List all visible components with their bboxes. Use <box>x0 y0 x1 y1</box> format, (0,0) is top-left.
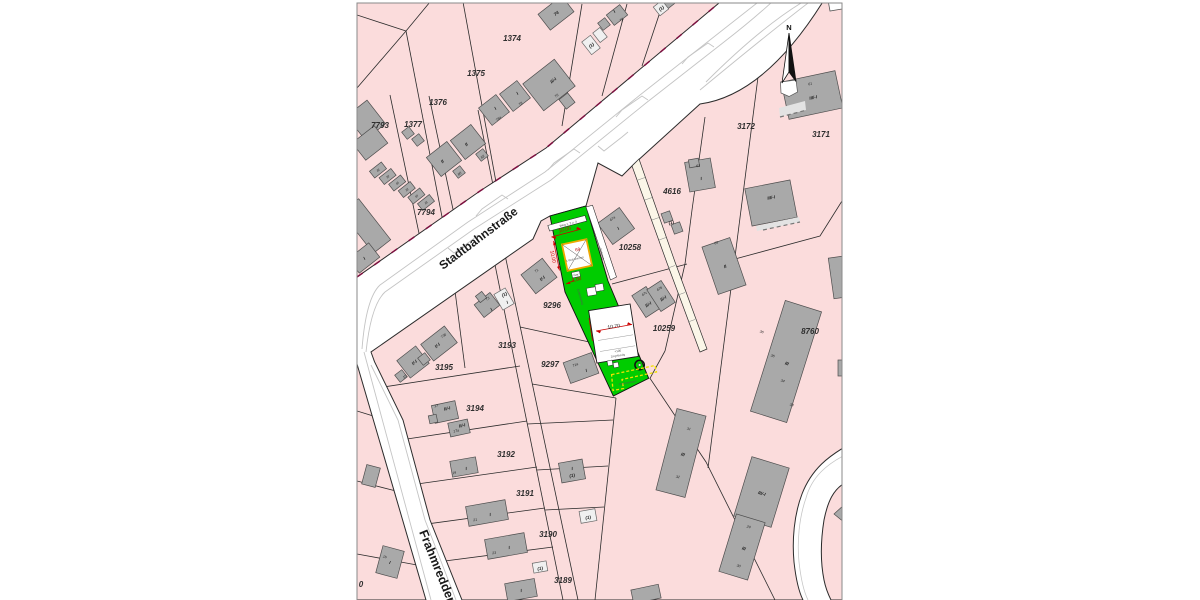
svg-text:10259: 10259 <box>653 324 676 333</box>
svg-text:7794: 7794 <box>417 208 435 217</box>
svg-text:9296: 9296 <box>543 301 561 310</box>
svg-text:3172: 3172 <box>737 122 755 131</box>
svg-text:3193: 3193 <box>498 341 516 350</box>
svg-text:3191: 3191 <box>516 489 534 498</box>
svg-text:1377: 1377 <box>404 120 422 129</box>
svg-text:9297: 9297 <box>541 360 559 369</box>
svg-text:3190: 3190 <box>539 530 557 539</box>
svg-text:1376: 1376 <box>429 98 447 107</box>
svg-text:1375: 1375 <box>467 69 485 78</box>
svg-text:3194: 3194 <box>466 404 484 413</box>
svg-text:4616: 4616 <box>662 187 681 196</box>
svg-text:19: 19 <box>452 471 457 476</box>
svg-text:7793: 7793 <box>371 121 389 130</box>
svg-text:N: N <box>786 23 791 32</box>
svg-text:21: 21 <box>472 518 478 523</box>
svg-text:23: 23 <box>491 551 497 556</box>
svg-text:10258: 10258 <box>619 243 642 252</box>
svg-text:3171: 3171 <box>812 130 830 139</box>
svg-text:1374: 1374 <box>503 34 521 43</box>
svg-text:0: 0 <box>359 580 364 589</box>
svg-text:3195: 3195 <box>435 363 453 372</box>
svg-text:63: 63 <box>696 164 701 169</box>
svg-text:3189: 3189 <box>554 576 572 585</box>
svg-text:3192: 3192 <box>497 450 515 459</box>
svg-text:8760: 8760 <box>801 327 819 336</box>
